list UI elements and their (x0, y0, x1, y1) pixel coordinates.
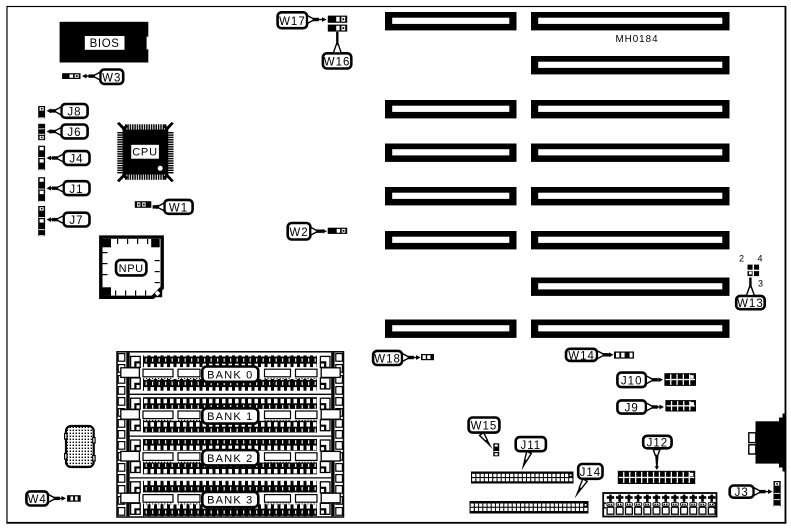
svg-text:BANK 2: BANK 2 (207, 453, 253, 465)
svg-text:J7: J7 (69, 215, 83, 227)
svg-text:J1: J1 (69, 184, 83, 196)
svg-text:W14: W14 (568, 351, 595, 363)
svg-text:J3: J3 (735, 487, 749, 499)
svg-text:J12: J12 (647, 438, 669, 450)
svg-text:J9: J9 (625, 403, 639, 415)
svg-text:J4: J4 (69, 154, 83, 166)
svg-text:BANK 3: BANK 3 (207, 495, 253, 507)
svg-text:J14: J14 (580, 467, 602, 479)
svg-text:3: 3 (758, 279, 763, 289)
svg-text:W13: W13 (737, 298, 764, 310)
svg-text:J8: J8 (67, 107, 81, 119)
svg-text:MH0184: MH0184 (616, 34, 659, 45)
svg-text:NPU: NPU (119, 263, 144, 275)
svg-text:2: 2 (739, 254, 744, 264)
svg-text:J10: J10 (621, 376, 643, 388)
svg-text:4: 4 (758, 254, 763, 264)
svg-text:CPU: CPU (132, 147, 158, 159)
svg-text:W4: W4 (28, 494, 47, 506)
svg-text:W18: W18 (374, 354, 401, 366)
svg-text:J11: J11 (520, 440, 541, 452)
svg-text:BANK 1: BANK 1 (207, 411, 253, 423)
svg-text:W2: W2 (289, 227, 308, 239)
svg-text:J6: J6 (67, 127, 81, 139)
svg-text:W15: W15 (471, 421, 498, 433)
svg-text:BANK 0: BANK 0 (207, 369, 253, 381)
svg-text:W1: W1 (169, 203, 188, 215)
svg-text:BIOS: BIOS (90, 38, 120, 50)
svg-text:W17: W17 (279, 16, 306, 28)
svg-text:W3: W3 (102, 72, 121, 84)
svg-text:W16: W16 (324, 57, 351, 69)
